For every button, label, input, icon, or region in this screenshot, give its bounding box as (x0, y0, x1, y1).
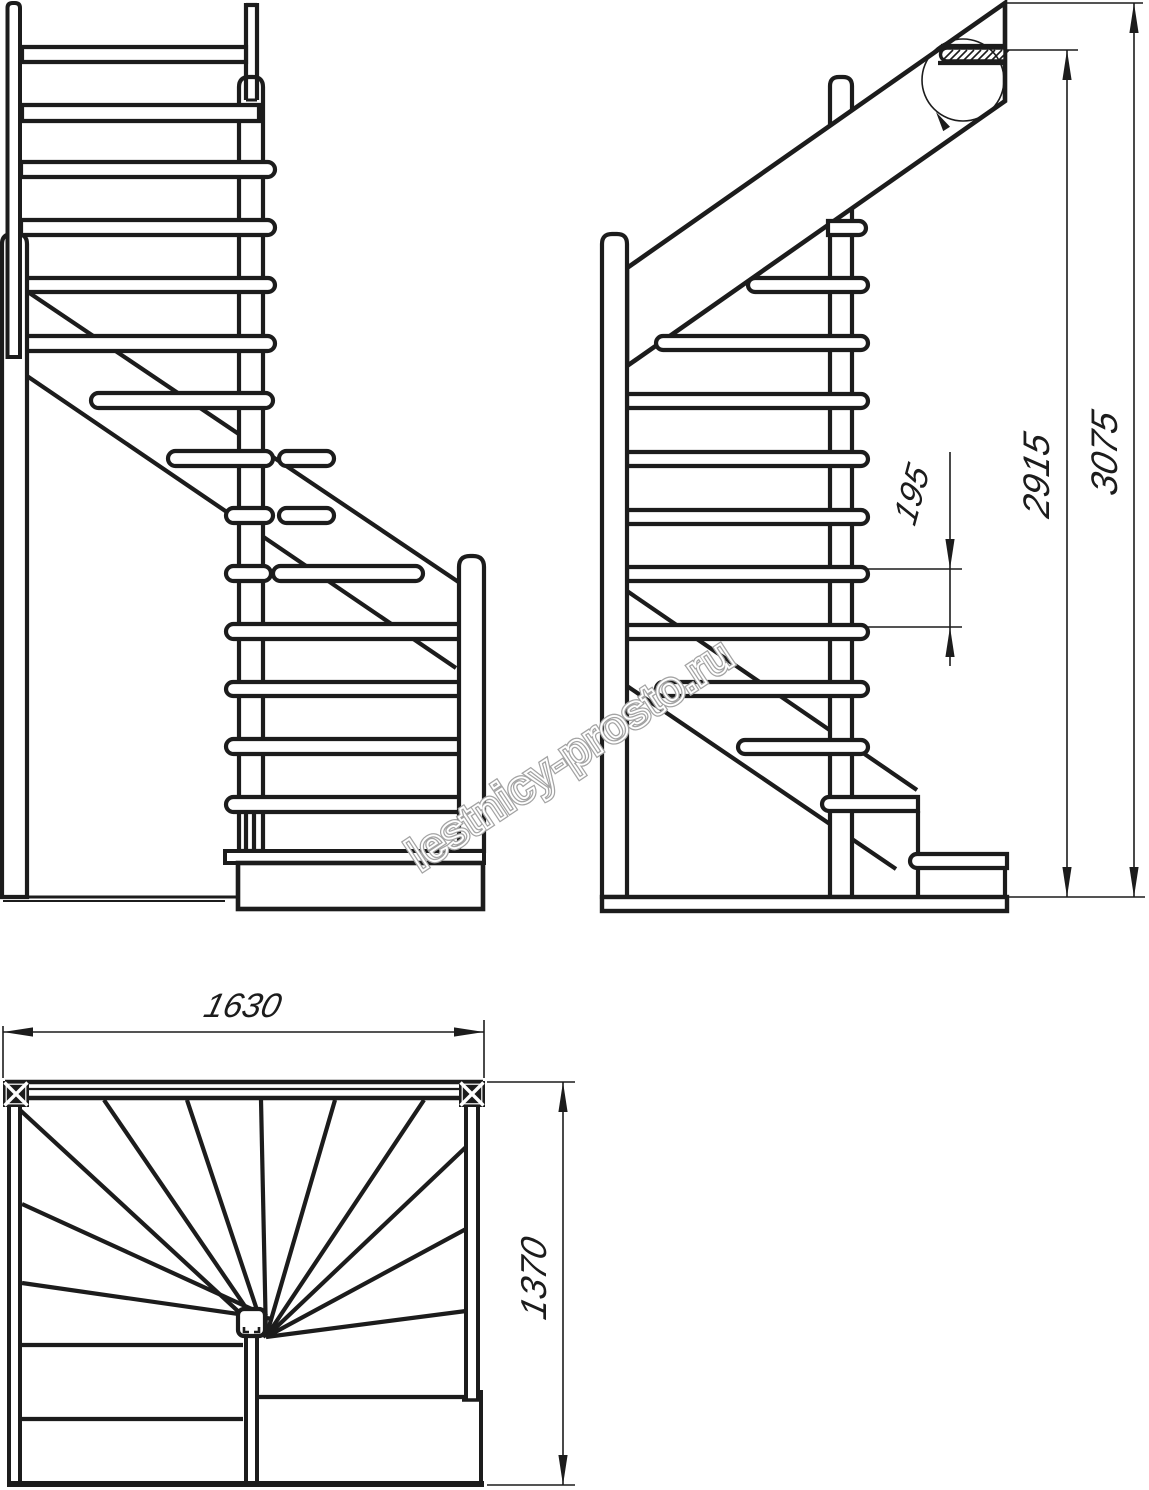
svg-text:2915: 2915 (1016, 428, 1057, 522)
svg-text:1370: 1370 (514, 1232, 554, 1323)
svg-text:1630: 1630 (200, 987, 285, 1024)
svg-text:3075: 3075 (1084, 406, 1125, 499)
